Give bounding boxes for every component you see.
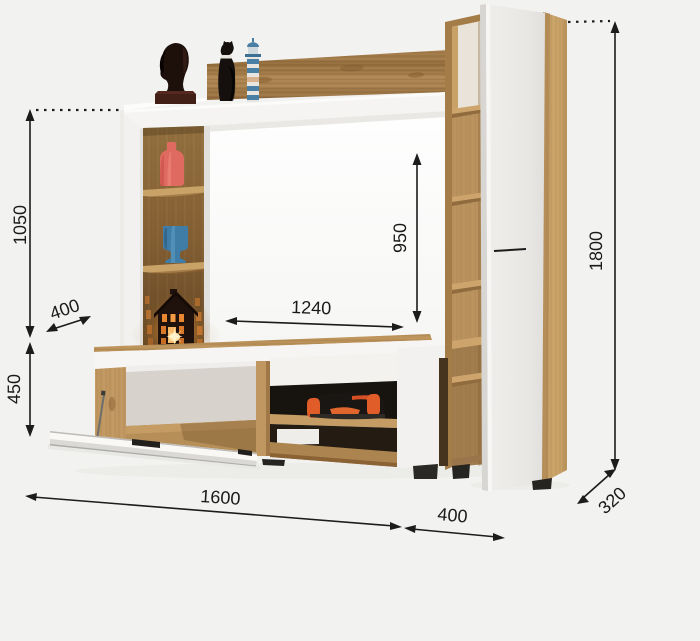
svg-text:1050: 1050 [10, 205, 30, 245]
svg-text:400: 400 [437, 504, 469, 527]
svg-text:450: 450 [4, 374, 24, 404]
svg-text:1240: 1240 [291, 297, 332, 318]
svg-text:1600: 1600 [200, 486, 241, 509]
svg-text:950: 950 [390, 223, 410, 253]
svg-text:1800: 1800 [586, 231, 606, 271]
